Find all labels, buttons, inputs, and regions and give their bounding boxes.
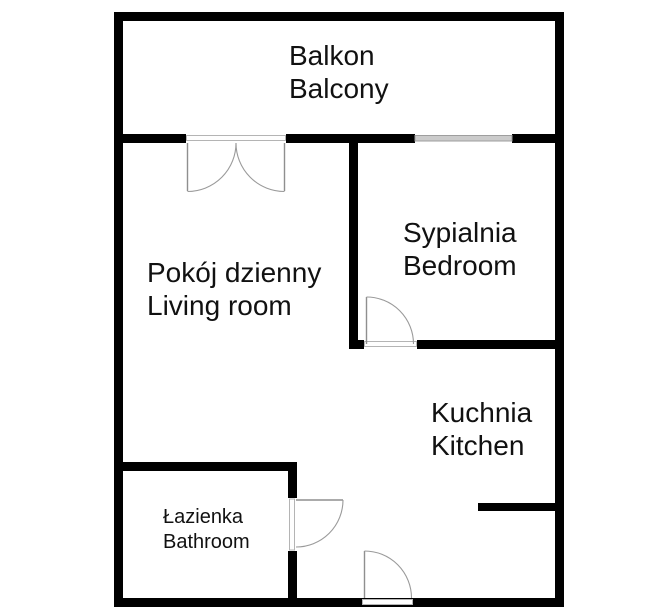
wall-kitchen-stub	[478, 503, 564, 511]
wall-bedroom-bottom-stub	[349, 340, 364, 349]
room-label-kitchen: Kuchnia Kitchen	[431, 396, 532, 462]
bathroom-door-swing-arc	[296, 500, 343, 547]
bedroom-door-frame	[365, 342, 417, 347]
bedroom-balcony-window	[415, 136, 512, 142]
room-name-en: Bathroom	[163, 530, 250, 555]
entrance-door-frame	[363, 600, 413, 605]
room-name-pl: Łazienka	[163, 505, 250, 530]
room-name-en: Balcony	[289, 72, 389, 105]
balcony-door-frame	[187, 136, 286, 141]
bathroom-door-frame	[290, 499, 295, 550]
room-name-pl: Balkon	[289, 39, 389, 72]
wall-right	[555, 12, 564, 607]
wall-living-bedroom-divider	[349, 134, 358, 349]
wall-balcony-right-segment	[512, 134, 564, 143]
entrance-door	[365, 551, 412, 598]
balcony-double-door	[188, 143, 285, 192]
room-name-en: Living room	[147, 289, 321, 322]
entrance-door-swing-arc	[365, 551, 412, 598]
room-name-en: Bedroom	[403, 249, 517, 282]
wall-balcony-left-segment	[114, 134, 186, 143]
room-label-bedroom: Sypialnia Bedroom	[403, 216, 517, 282]
balcony-door-left-swing-arc	[188, 143, 237, 192]
wall-bathroom-right-upper	[288, 462, 297, 498]
wall-bathroom-right-lower	[288, 551, 297, 607]
wall-bottom	[114, 598, 564, 607]
balcony-door-right-swing-arc	[236, 143, 285, 192]
room-name-pl: Pokój dzienny	[147, 256, 321, 289]
bedroom-door-swing-arc	[367, 297, 414, 344]
bathroom-door	[296, 500, 343, 547]
wall-bathroom-top	[114, 462, 297, 471]
floor-plan: Balkon Balcony Pokój dzienny Living room…	[0, 0, 663, 610]
room-label-bathroom: Łazienka Bathroom	[163, 505, 250, 555]
room-name-pl: Sypialnia	[403, 216, 517, 249]
wall-left	[114, 12, 123, 607]
bedroom-door	[367, 297, 414, 344]
room-name-en: Kitchen	[431, 429, 532, 462]
wall-top	[114, 12, 564, 21]
wall-bedroom-bottom	[417, 340, 564, 349]
room-name-pl: Kuchnia	[431, 396, 532, 429]
room-label-living-room: Pokój dzienny Living room	[147, 256, 321, 322]
room-label-balcony: Balkon Balcony	[289, 39, 389, 105]
